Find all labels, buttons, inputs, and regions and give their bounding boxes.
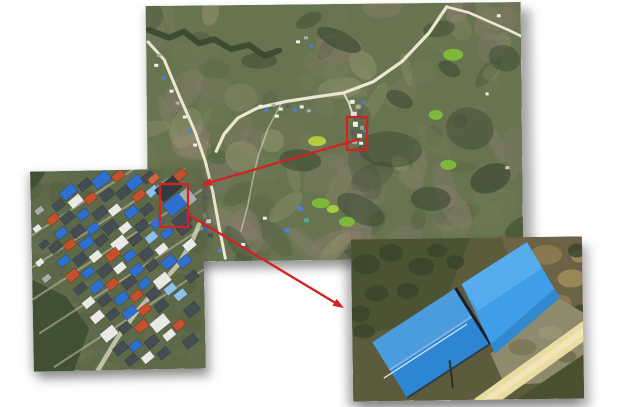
building (183, 116, 187, 119)
building (259, 105, 263, 108)
building (170, 90, 174, 93)
building (304, 36, 308, 39)
building (296, 40, 300, 43)
building (279, 108, 283, 111)
building (297, 206, 303, 210)
building (284, 228, 290, 232)
building (307, 109, 311, 112)
building (272, 104, 276, 107)
building (208, 233, 213, 237)
building (497, 14, 501, 17)
building (360, 126, 364, 130)
building (176, 102, 180, 105)
building (362, 101, 366, 104)
building (265, 109, 269, 112)
building (310, 44, 313, 47)
building (206, 219, 211, 223)
building (304, 218, 309, 222)
building (193, 143, 197, 146)
building (359, 116, 364, 120)
building (300, 105, 304, 108)
building (486, 92, 489, 95)
building (154, 64, 158, 67)
building (351, 112, 357, 117)
building (286, 104, 290, 107)
building (188, 129, 192, 132)
building (363, 130, 367, 133)
building (157, 54, 161, 57)
building (161, 77, 165, 80)
building (356, 105, 361, 109)
building (352, 140, 357, 144)
building (359, 142, 363, 145)
warehouse-zoom-inset (351, 236, 584, 401)
building (505, 166, 509, 169)
aerial-zoom-figure (0, 0, 629, 407)
building (217, 249, 221, 252)
building (353, 122, 358, 127)
building (241, 243, 245, 246)
building (263, 217, 267, 220)
warehouse-inset-graphic (351, 236, 584, 401)
building (293, 108, 297, 111)
arrow-head (333, 299, 344, 308)
building (350, 131, 355, 135)
building (357, 134, 362, 138)
building (350, 100, 355, 104)
village-zoom-inset (30, 168, 206, 371)
building (275, 115, 279, 118)
village-inset-graphic (30, 168, 206, 371)
